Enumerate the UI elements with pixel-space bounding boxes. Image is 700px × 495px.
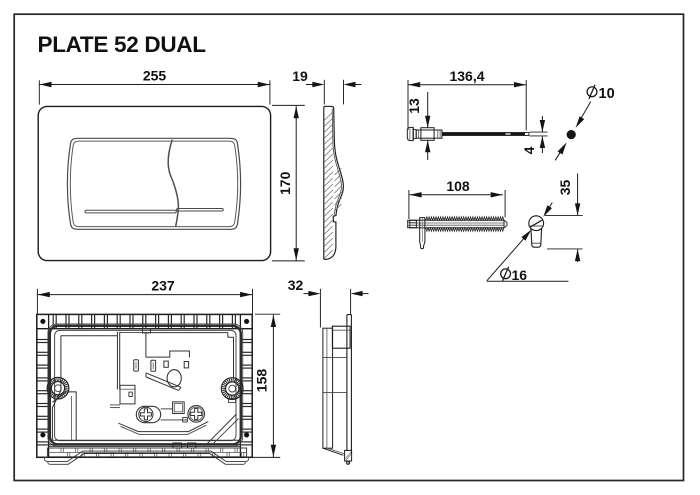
svg-text:4: 4: [521, 146, 537, 154]
svg-text:136,4: 136,4: [449, 68, 484, 84]
svg-text:32: 32: [288, 277, 304, 293]
svg-text:PLATE 52 DUAL: PLATE 52 DUAL: [38, 32, 207, 57]
svg-text:255: 255: [143, 68, 167, 84]
svg-text:19: 19: [292, 68, 308, 84]
svg-text:35: 35: [557, 180, 573, 196]
svg-text:10: 10: [599, 86, 615, 102]
svg-text:158: 158: [253, 369, 269, 393]
svg-text:13: 13: [406, 98, 422, 114]
svg-text:108: 108: [446, 178, 470, 194]
svg-text:170: 170: [277, 171, 293, 195]
svg-text:237: 237: [151, 277, 175, 293]
svg-text:16: 16: [512, 267, 528, 283]
